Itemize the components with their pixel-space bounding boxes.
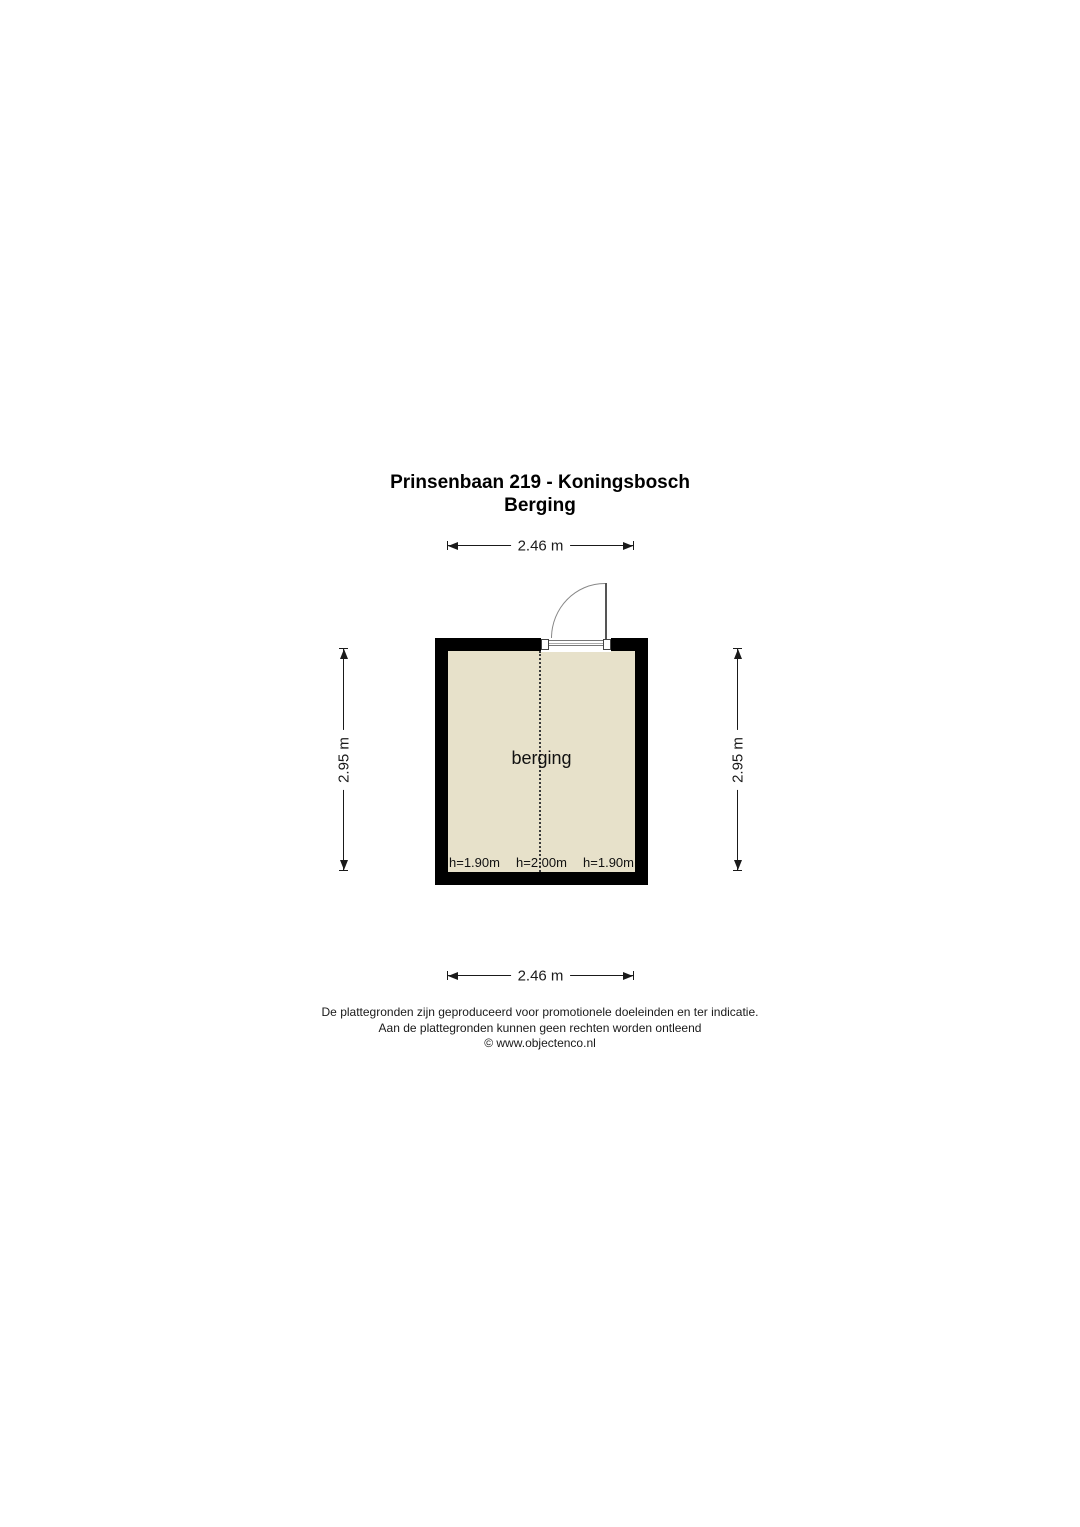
page-title-line2: Berging [0,494,1080,517]
arrow-right-icon [623,972,633,980]
page-title-line1: Prinsenbaan 219 - Koningsbosch [0,471,1080,494]
arrow-right-icon [623,542,633,550]
page-title: Prinsenbaan 219 - Koningsbosch Berging [0,471,1080,517]
dimension-left: 2.95 m [336,648,351,871]
dimension-top: 2.46 m [447,538,634,553]
disclaimer-line1: De plattegronden zijn geproduceerd voor … [0,1005,1080,1021]
dimension-right: 2.95 m [730,648,745,871]
height-label-left: h=1.90m [449,855,500,870]
arrow-up-icon [734,649,742,659]
dimension-label-top: 2.46 m [511,537,571,554]
disclaimer-line2: Aan de plattegronden kunnen geen rechten… [0,1021,1080,1037]
door-jamb-left [541,639,549,650]
door-leaf [605,583,607,639]
dimension-end-tick [339,870,348,871]
dimension-end-tick [733,870,742,871]
dimension-end-tick [633,541,634,550]
dimension-label-bottom: 2.46 m [511,967,571,984]
door-swing-arc [551,583,605,638]
height-label-center: h=2.00m [516,855,567,870]
floor-plan-page: Prinsenbaan 219 - Koningsbosch Berging 2… [0,0,1080,1527]
height-label-right: h=1.90m [583,855,634,870]
room-label: berging [435,748,648,769]
arrow-down-icon [734,860,742,870]
arrow-left-icon [448,542,458,550]
arrow-up-icon [340,649,348,659]
disclaimer-copyright: © www.objectenco.nl [0,1036,1080,1052]
ceiling-height-labels: h=1.90m h=2.00m h=1.90m [449,855,634,870]
arrow-down-icon [340,860,348,870]
arrow-left-icon [448,972,458,980]
dimension-label-right: 2.95 m [729,730,746,790]
disclaimer: De plattegronden zijn geproduceerd voor … [0,1005,1080,1052]
door-threshold-line [549,643,603,644]
dimension-bottom: 2.46 m [447,968,634,983]
door-jamb-right [603,639,611,650]
dimension-end-tick [633,971,634,980]
dimension-label-left: 2.95 m [335,730,352,790]
